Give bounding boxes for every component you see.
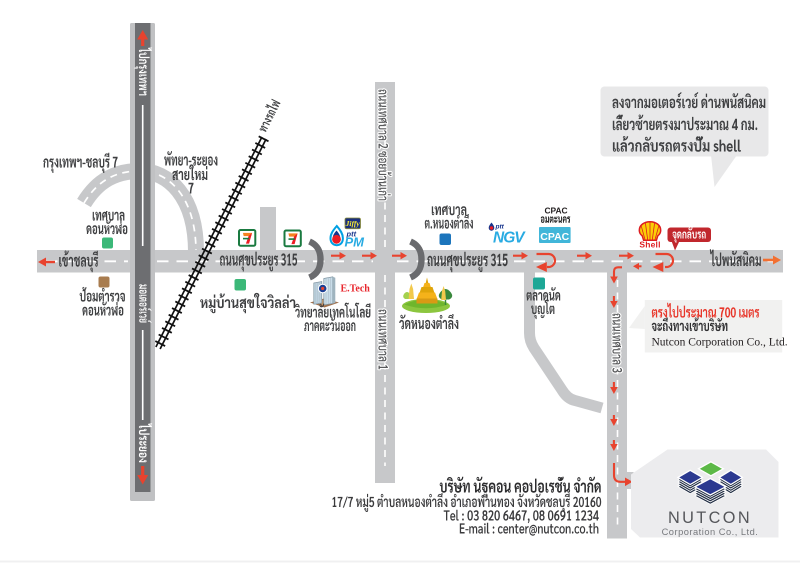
svg-text:Jiffy: Jiffy bbox=[345, 219, 361, 228]
svg-text:CPAC: CPAC bbox=[544, 206, 567, 216]
svg-text:Shell: Shell bbox=[639, 240, 660, 250]
svg-text:CPAC: CPAC bbox=[540, 231, 569, 243]
svg-text:Nutcon Corporation Co., Ltd.: Nutcon Corporation Co., Ltd. bbox=[652, 337, 788, 349]
svg-text:NGV: NGV bbox=[493, 230, 526, 247]
svg-text:Corporation Co., Ltd.: Corporation Co., Ltd. bbox=[662, 527, 759, 537]
svg-text:NUTCON: NUTCON bbox=[668, 509, 752, 527]
svg-text:PM: PM bbox=[345, 235, 366, 250]
svg-text:E.Tech: E.Tech bbox=[341, 284, 371, 295]
